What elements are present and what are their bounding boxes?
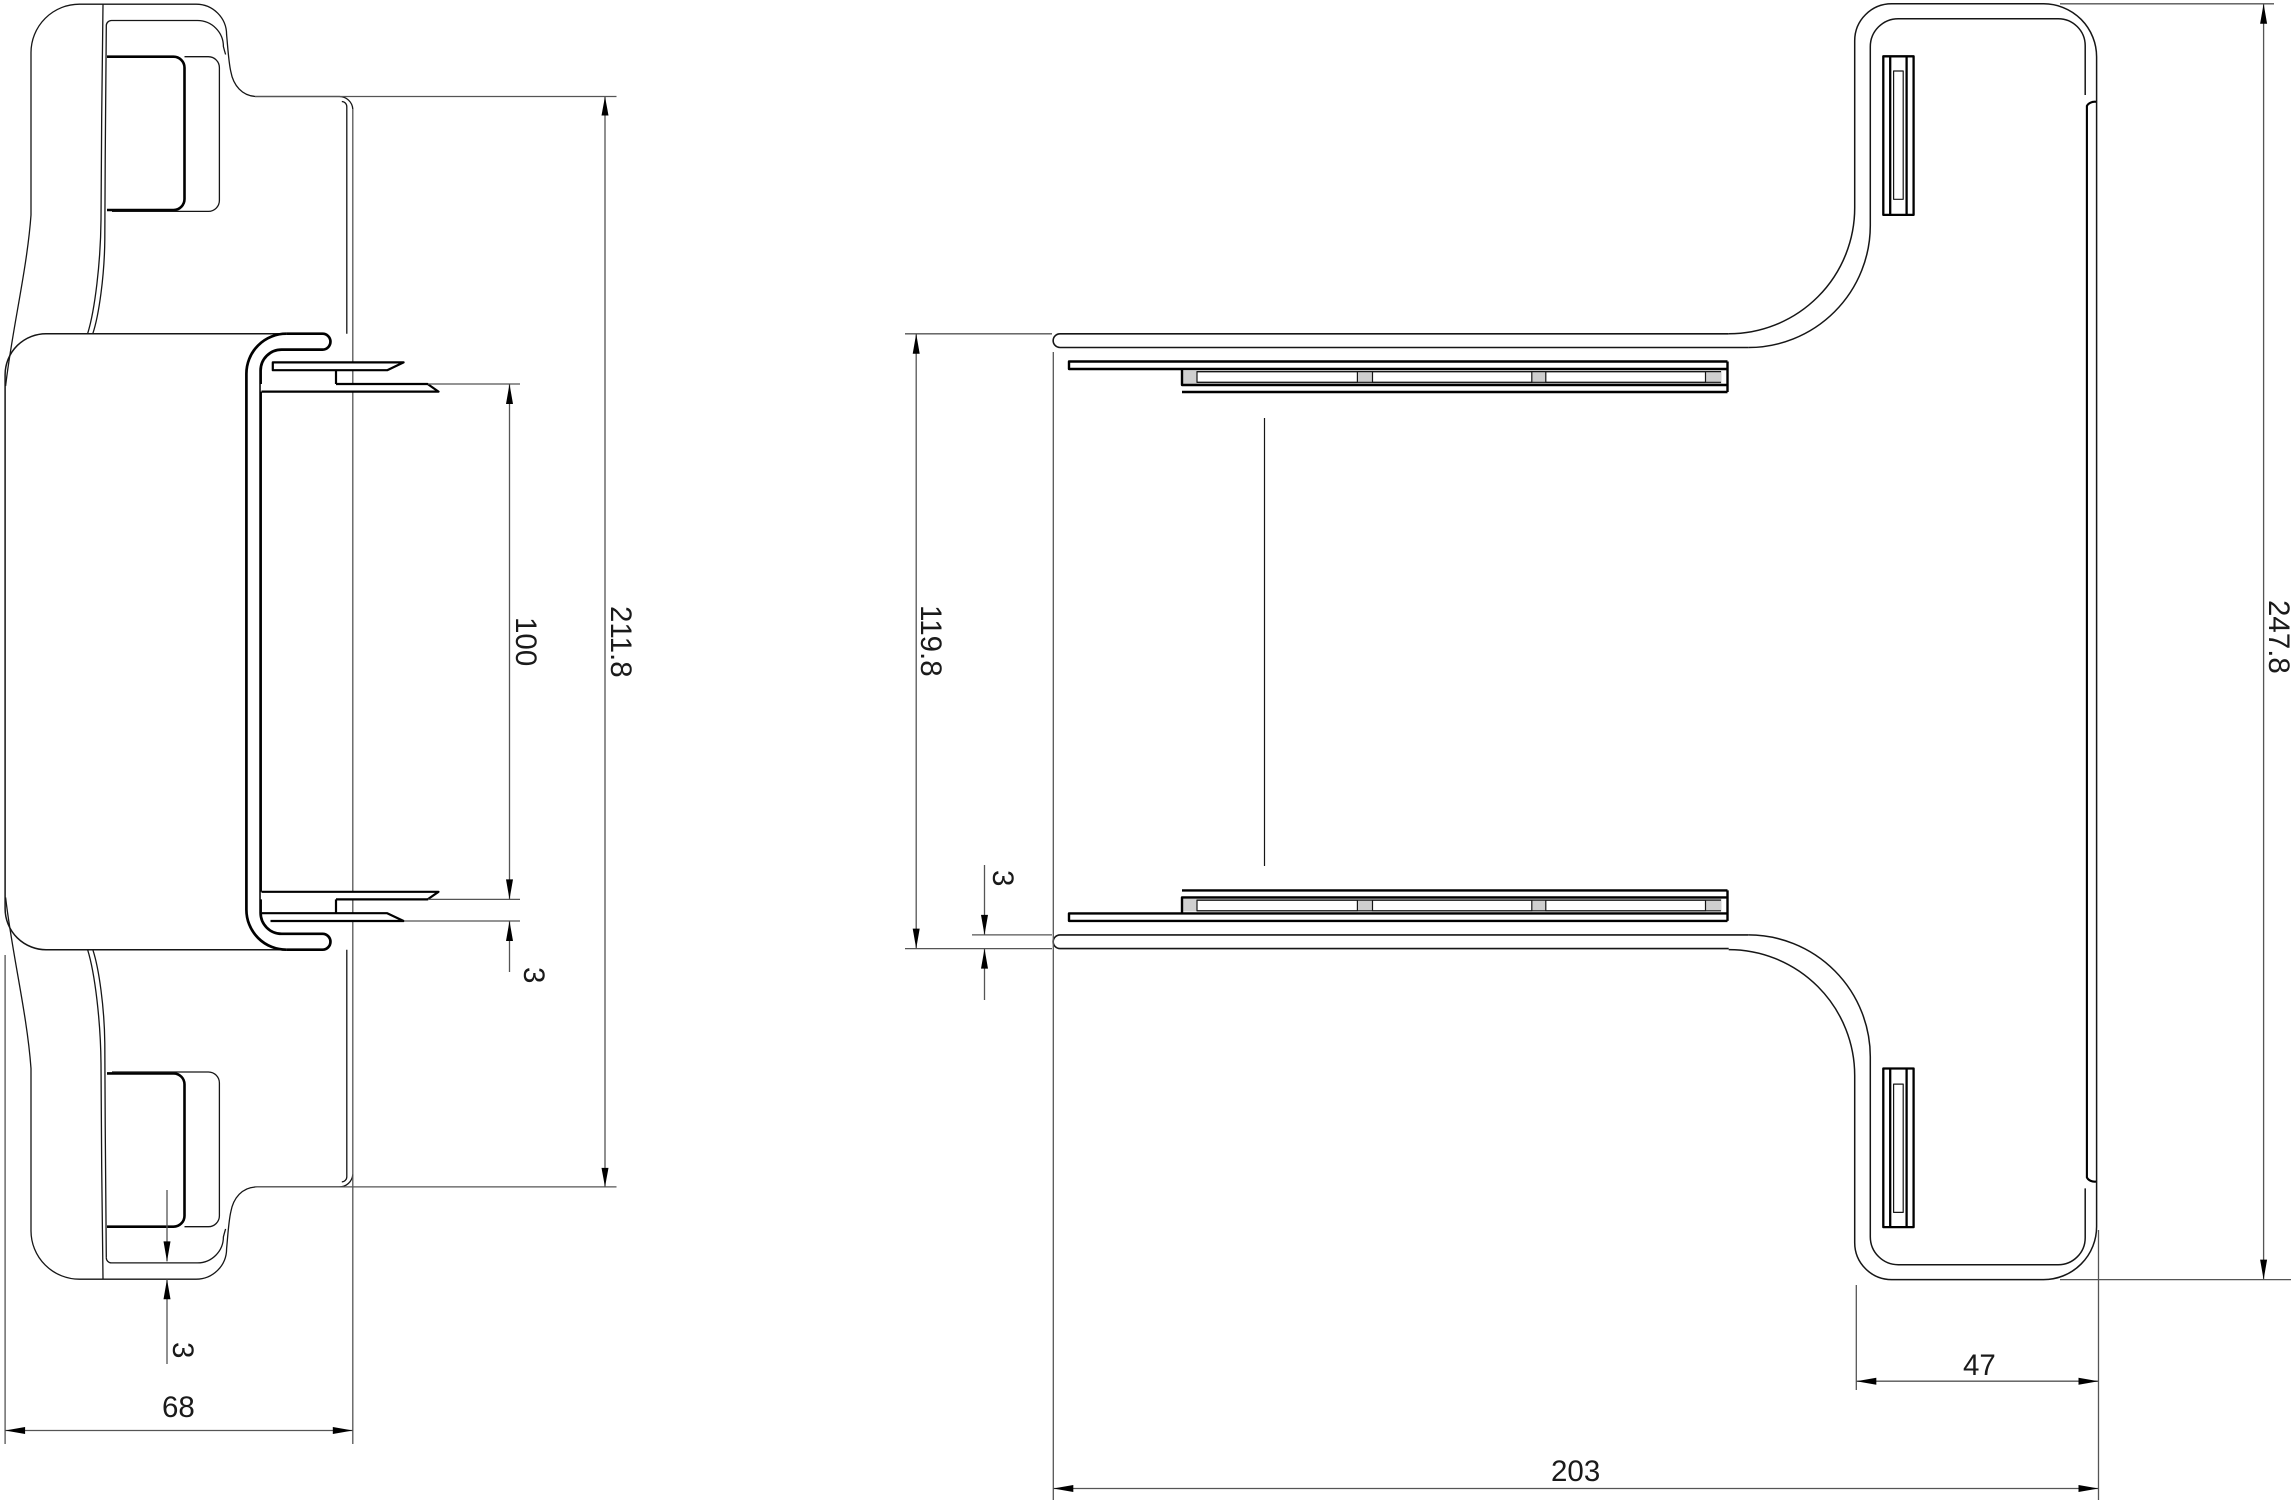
svg-text:247.8: 247.8 — [2262, 600, 2291, 674]
svg-text:203: 203 — [1551, 1455, 1600, 1488]
svg-text:100: 100 — [509, 617, 542, 666]
svg-text:119.8: 119.8 — [914, 605, 947, 677]
svg-text:3: 3 — [166, 1342, 199, 1358]
svg-text:68: 68 — [162, 1391, 195, 1424]
svg-text:47: 47 — [1963, 1349, 1996, 1382]
svg-text:3: 3 — [986, 870, 1019, 886]
svg-text:3: 3 — [517, 967, 550, 983]
svg-text:211.8: 211.8 — [604, 606, 637, 678]
